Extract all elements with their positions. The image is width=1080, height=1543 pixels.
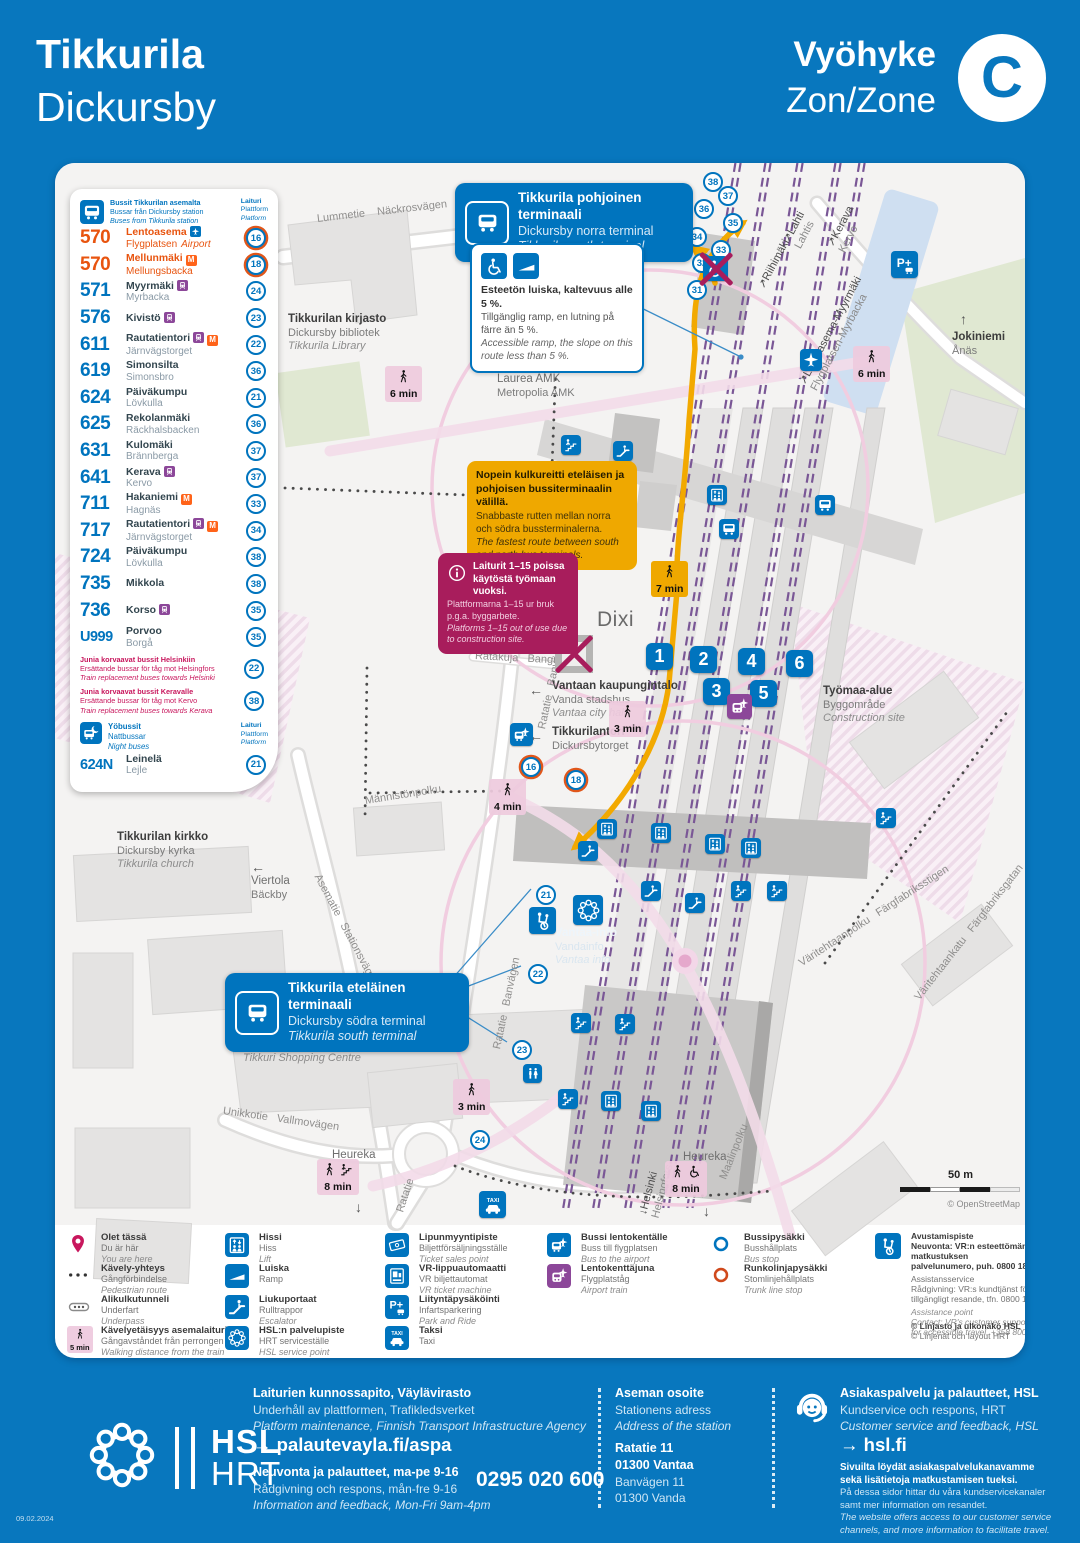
bus-icon: [472, 208, 502, 238]
walker-icon: [670, 1164, 685, 1183]
legend-icon: [385, 1233, 409, 1260]
flower-icon: [225, 1326, 249, 1350]
bus-route-row: 631KulomäkiBrännberga37: [80, 438, 268, 465]
route-number: 624: [80, 387, 126, 409]
airport-icon: [800, 349, 822, 371]
platform-chip-2: 2: [690, 646, 717, 673]
assistance-point-icon: [875, 1233, 901, 1259]
train-icon: [164, 466, 175, 477]
route-destination-fi: Simonsilta: [126, 360, 179, 371]
night-route-row: 624NLeineläLejle21: [80, 752, 268, 779]
bus-route-row: 724PäiväkumpuLövkulla38: [80, 544, 268, 571]
platform-header-en: Platform: [241, 215, 268, 223]
stairs-icon: [571, 1013, 591, 1033]
route-destination-sv: Mellungsbacka: [126, 266, 193, 277]
platform-circle: 38: [246, 574, 266, 594]
bus-route-row: 641KeravaKervo37: [80, 464, 268, 491]
route-destination-sv: Järnvägstorget: [126, 346, 192, 357]
train-replacement-row: Junia korvaavat bussit HelsinkiinErsätta…: [80, 655, 268, 683]
street-label-ratatie-s: Ratatie: [394, 1177, 416, 1214]
platform-circle-36: 36: [694, 199, 714, 219]
lift-icon: [597, 819, 617, 839]
hsl-link[interactable]: → hsl.fi: [840, 1434, 907, 1456]
bus-stop-icon: [815, 495, 835, 515]
vantaa-info-icon: [573, 895, 603, 925]
route-number: 624N: [80, 757, 126, 773]
platform-circle: 22: [244, 659, 264, 679]
route-number: 717: [80, 520, 126, 542]
walk-badge-mannisto: 4 min: [489, 779, 526, 815]
map-label-vantaa-info: Vantaa-infoVandainfoVantaa info: [555, 927, 617, 967]
platform-circle: 37: [246, 468, 266, 488]
street-label-unikkotie: Unikkotie Vallmovägen: [222, 1105, 340, 1133]
route-destination-fi: Mikkola: [126, 578, 164, 589]
route-destination-fi: Kerava: [126, 467, 161, 478]
legend-item: RunkolinjapysäkkiStomlinjehållplatsTrunk…: [744, 1263, 896, 1295]
bus-icon: [465, 201, 509, 245]
route-destination-fi: Korso: [126, 605, 156, 616]
platform-circle-23: 23: [512, 1040, 532, 1060]
escalator-icon: [613, 441, 633, 461]
walk-badge-center: 3 min: [609, 701, 646, 737]
street-label-ratatie-banvagen-s: Ratatie Banvägen: [491, 956, 522, 1050]
platform-circle: 38: [244, 691, 264, 711]
platform-circle: 16: [246, 228, 266, 248]
bus-route-row: 571MyyrmäkiMyrbacka24: [80, 278, 268, 305]
ramp-sv: Tillgänglig ramp, en lutning på färre än…: [481, 311, 633, 337]
panel-title-en: Buses from Tikkurila station: [110, 216, 203, 225]
legend-icon: [225, 1233, 249, 1260]
route-number: 625: [80, 413, 126, 435]
train-icon: [177, 280, 188, 291]
platforms-closed-fi: Laiturit 1–15 poissa käytöstä työmaan vu…: [473, 561, 569, 599]
route-destination-sv: Myrbacka: [126, 292, 169, 303]
route-number: 631: [80, 440, 126, 462]
map-label-church: Tikkurilan kirkkoDickursby kyrkaTikkuril…: [117, 831, 208, 871]
legend-icon: [225, 1264, 249, 1291]
zone-label-fi: Vyöhyke: [786, 32, 936, 78]
route-number: 571: [80, 280, 126, 302]
south-terminal-callout: Tikkurila eteläinen terminaali Dickursby…: [225, 973, 469, 1052]
svg-text:TAXI: TAXI: [391, 1331, 403, 1337]
map-card: Tikkurilan kirjastoDickursby bibliotekTi…: [55, 163, 1025, 1358]
escalator-icon: [685, 893, 705, 913]
stairs-icon: [561, 435, 581, 455]
night-bus-icon: [80, 722, 102, 744]
route-destination-fi: Lentoasema: [126, 227, 187, 238]
train-replacement-row: Junia korvaavat bussit KeravalleErsättan…: [80, 687, 268, 715]
route-number: 619: [80, 360, 126, 382]
platform-circle-21: 21: [536, 885, 556, 905]
route-number: 570: [80, 227, 126, 249]
platform-circle: 33: [246, 494, 266, 514]
stairs-icon: [767, 881, 787, 901]
route-destination-sv: Hagnäs: [126, 505, 160, 516]
walk-badge-heureka-east: 8 min: [665, 1161, 707, 1197]
walker-icon: [864, 349, 879, 368]
bus-route-row: 570LentoasemaFlygplatsenAirport16: [80, 225, 268, 252]
footer-divider: [598, 1388, 601, 1508]
legend-icon: [385, 1264, 409, 1291]
bus-icon: [242, 998, 272, 1028]
walker-icon: [322, 1162, 337, 1181]
panel-title-fi: Bussit Tikkurilan asemalta: [110, 198, 203, 207]
route-number: 611: [80, 334, 126, 356]
walker-icon: [662, 564, 677, 583]
copyright: © Linjasto ja ulkonäkö HSL© Linjenät och…: [911, 1321, 1025, 1341]
route-number: 724: [80, 546, 126, 568]
ticket-icon: [385, 1233, 409, 1257]
customer-service-icon: [790, 1385, 834, 1434]
platform-circle: 37: [246, 441, 266, 461]
airport-train-icon: [727, 694, 752, 719]
street-label-varitehtaanpolku: Väritehtaanpolku Färgfabriksstigen: [797, 863, 951, 969]
platform-chip-5: 5: [750, 680, 777, 707]
route-destination-fi: Hakaniemi: [126, 492, 178, 503]
station-map-poster: Tikkurila Dickursby Vyöhyke Zon/Zone C: [0, 0, 1080, 1543]
busplane-icon: [547, 1233, 571, 1257]
scale-bar: [900, 1187, 1020, 1192]
address-head: Aseman osoite Stationens adress Address …: [615, 1385, 731, 1434]
osm-attribution: © OpenStreetMap: [900, 1199, 1020, 1209]
route-number: U999: [80, 629, 126, 645]
escalator-icon: [641, 881, 661, 901]
platform-chip-4: 4: [738, 648, 765, 675]
night-title-en: Night buses: [108, 742, 149, 752]
accessible-entrance-closed-icon: [703, 256, 728, 281]
lift-icon: [641, 1101, 661, 1121]
legend-icon: [547, 1264, 571, 1291]
scale-label: 50 m: [948, 1169, 973, 1181]
panel-title-sv: Bussar från Dickursby station: [110, 207, 203, 216]
map-label-dixi: Dixi: [597, 607, 634, 632]
hsl-flower-icon: [85, 1418, 159, 1497]
zone-letter-badge: C: [958, 34, 1046, 122]
direction-arrow: ↑: [960, 311, 967, 327]
north-terminal-sv: Dickursby norra terminal: [518, 224, 683, 240]
north-terminal-fi: Tikkurila pohjoinen terminaali: [518, 190, 683, 224]
platform-circle: 18: [246, 255, 266, 275]
legend-icon: [67, 1233, 89, 1260]
route-destination-fi: Päiväkumpu: [126, 387, 187, 398]
service-body: Sivuilta löydät asiakaspalvelukanavamme …: [840, 1462, 1051, 1537]
route-destination-en: Airport: [181, 239, 210, 250]
route-destination-fi: Kulomäki: [126, 440, 173, 451]
platform-chip-3: 3: [703, 678, 730, 705]
ramp-fi: Esteetön luiska, kaltevuus alle 5 %.: [481, 284, 633, 311]
wheelchair-icon: [481, 253, 507, 279]
taxi-icon: TAXI: [385, 1326, 409, 1350]
direction-arrow: ↓: [703, 1203, 710, 1219]
platforms-closed-callout: Laiturit 1–15 poissa käytöstä työmaan vu…: [438, 553, 578, 654]
route-number: 641: [80, 467, 126, 489]
bus-route-row: 717RautatientoriMJärnvägstorget34: [80, 518, 268, 545]
platform-circle: 34: [246, 521, 266, 541]
street-label-lummetie: Lummetie Näckrosvägen: [316, 198, 447, 225]
walk-badge-heureka-west: 8 min: [317, 1159, 359, 1195]
platform-circle: 21: [246, 388, 266, 408]
bus-to-airport-icon: [510, 723, 533, 746]
platform-circle: 23: [246, 308, 266, 328]
legend-icon: [875, 1233, 901, 1262]
trunk-stop-icon: [710, 1273, 732, 1290]
maintenance-block: Laiturien kunnossapito, Väylävirasto Und…: [253, 1385, 586, 1434]
train-icon: [164, 312, 175, 323]
route-destination-sv: Lejle: [126, 765, 246, 776]
map-label-viertola: ViertolaBäckby: [251, 875, 290, 902]
platforms-closed-sv: Plattformarna 1–15 ur bruk p.g.a. byggar…: [447, 599, 569, 622]
parkride-icon: P+: [385, 1295, 409, 1319]
walker-icon: [396, 369, 411, 388]
bus-route-row: 611RautatientoriMJärnvägstorget22: [80, 331, 268, 358]
bus-route-row: 736Korso35: [80, 597, 268, 624]
platform-circle: 36: [246, 414, 266, 434]
night-title-sv: Nattbussar: [108, 732, 149, 742]
platforms-closed-en: Platforms 1–15 out of use due to constru…: [447, 623, 569, 646]
platform-circle-16: 16: [521, 757, 541, 777]
legend-icon: [67, 1295, 91, 1324]
lift-icon: [651, 823, 671, 843]
legend-icon: 5 min: [67, 1326, 93, 1355]
route-destination-sv: Simonsbro: [126, 372, 174, 383]
route-destination-sv: Kervo: [126, 478, 152, 489]
bus-route-row: 624PäiväkumpuLövkulla21: [80, 385, 268, 412]
metro-icon: M: [186, 255, 197, 266]
bus-route-row: 570MellunmäkiMMellungsbacka18: [80, 252, 268, 279]
platform-circle: 22: [246, 335, 266, 355]
map-label-construction-east: Työmaa-alueByggområdeConstruction site: [823, 685, 905, 725]
footer-divider: [772, 1388, 775, 1508]
route-destination-fi: Myyrmäki: [126, 281, 174, 292]
fastest-route-sv: Snabbaste rutten mellan norra och södra …: [476, 510, 628, 536]
stairs-icon: [339, 1162, 354, 1181]
route-destination-sv: Borgå: [126, 638, 153, 649]
legend-icon: [547, 1233, 571, 1260]
legend-icon: [710, 1233, 732, 1260]
route-destination-sv: Lövkulla: [126, 558, 163, 569]
platform-circle: 24: [246, 281, 266, 301]
park-and-ride-icon: P+: [891, 251, 918, 278]
title-fi: Tikkurila: [36, 28, 216, 81]
walk-badge-south: 3 min: [453, 1079, 490, 1115]
street-label-mannistonpolku: Männistönpolku: [364, 783, 442, 807]
route-destination-fi: Päiväkumpu: [126, 546, 187, 557]
escalator-icon: [225, 1295, 249, 1319]
route-number: 736: [80, 600, 126, 622]
bus-icon: [80, 200, 104, 224]
platform-header-sv: Plattform: [241, 206, 268, 214]
service-head: Asiakaspalvelu ja palautteet, HSL Kundse…: [840, 1385, 1039, 1434]
walk-badge-bridge: 7 min: [651, 561, 688, 597]
walk-badge-library: 6 min: [385, 366, 422, 402]
metro-icon: M: [181, 494, 192, 505]
stairs-icon: [615, 1014, 635, 1034]
platform-circle: 35: [246, 601, 266, 621]
legend-icon: [67, 1264, 89, 1291]
legend-icon: [225, 1326, 249, 1353]
metro-icon: M: [207, 521, 218, 532]
bus-departures-panel: Bussit Tikkurilan asemalta Bussar från D…: [70, 189, 278, 792]
escalator-icon: [578, 841, 598, 861]
underpass-icon: [67, 1306, 91, 1323]
route-number: 711: [80, 493, 126, 515]
bus-stop-icon: [710, 1242, 732, 1259]
platform-circle-22: 22: [528, 964, 548, 984]
route-destination-sv: Räckhalsbacken: [126, 425, 199, 436]
stairs-icon: [558, 1089, 578, 1109]
route-destination-fi: Leinelä: [126, 754, 246, 766]
map-label-laurea: Laurea AMKMetropolia AMK: [497, 373, 575, 400]
bus-route-row: U999PorvooBorgå35: [80, 624, 268, 651]
stairs-icon: [731, 881, 751, 901]
you-are-here-pin-icon: [67, 1242, 89, 1259]
svg-text:TAXI: TAXI: [486, 1197, 499, 1203]
direction-arrow: ←: [529, 682, 543, 698]
vr-icon: [385, 1264, 409, 1288]
platform-circle: 38: [246, 547, 266, 567]
route-number: 576: [80, 307, 126, 329]
ramp-icon: [513, 253, 539, 279]
train-icon: [159, 604, 170, 615]
bus-icon: [235, 991, 279, 1035]
train-icon: [193, 518, 204, 529]
platform-circle-18: 18: [566, 770, 586, 790]
phone-number: 0295 020 600: [476, 1468, 604, 1492]
lift-icon: [707, 485, 727, 505]
walker-icon: [464, 1082, 479, 1101]
route-destination-fi: Porvoo: [126, 626, 162, 637]
wc-icon: [523, 1064, 542, 1083]
hsl-logo: HSL HRT: [85, 1418, 281, 1497]
zone-label-sv-en: Zon/Zone: [786, 78, 936, 124]
night-title-fi: Yöbussit: [108, 722, 149, 732]
lift-icon: [225, 1233, 249, 1257]
south-terminal-sv: Dickursby södra terminal: [288, 1014, 459, 1030]
route-destination-fi: Rautatientori: [126, 333, 190, 344]
train-icon: [193, 332, 204, 343]
legend-item: BussipysäkkiBusshållplatsBus stop: [744, 1232, 896, 1264]
feedback-link[interactable]: → palautevayla.fi/aspa: [253, 1434, 451, 1456]
track-label-riihimaki: ↗Riihimäki: [756, 237, 793, 291]
route-destination-fi: Kivistö: [126, 313, 161, 324]
map-label-library: Tikkurilan kirjastoDickursby bibliotekTi…: [288, 313, 386, 353]
route-destination-sv: Lövkulla: [126, 398, 163, 409]
walker-icon: [500, 782, 515, 801]
lift-icon: [705, 834, 725, 854]
platform-circle-35: 35: [723, 213, 743, 233]
south-terminal-fi: Tikkurila eteläinen terminaali: [288, 980, 459, 1014]
feedback-info-block: Neuvonta ja palautteet, ma-pe 9-16 Rådgi…: [253, 1464, 490, 1513]
logo-divider: [175, 1427, 195, 1489]
track-label-kerava: ↗KeravaKervo: [825, 204, 869, 255]
route-destination-fi: Rautatientori: [126, 519, 190, 530]
route-destination-fi: Mellunmäki: [126, 253, 183, 264]
bus-route-row: 625RekolanmäkiRäckhalsbacken36: [80, 411, 268, 438]
bus-route-row: 619SimonsiltaSimonsbro36: [80, 358, 268, 385]
direction-arrow: ↓: [355, 1199, 362, 1215]
platform-chip-6: 6: [786, 650, 813, 677]
title-sv: Dickursby: [36, 81, 216, 134]
bus-stop-icon: [719, 519, 739, 539]
platform-circle: 36: [246, 361, 266, 381]
pedestrian-route-icon: [67, 1273, 89, 1290]
legend-item: TaksiTaxi: [419, 1325, 571, 1347]
trainplane-icon: [547, 1264, 571, 1288]
platform-circle: 21: [246, 755, 266, 775]
route-destination-sv: Brännberga: [126, 451, 178, 462]
airport-icon: [190, 226, 201, 237]
route-destination-sv: Flygplatsen: [126, 239, 177, 250]
route-destination-fi: Rekolanmäki: [126, 413, 190, 424]
legend-icon: TAXI: [385, 1326, 409, 1353]
platform-circle: 35: [246, 627, 266, 647]
platform-circle-38: 38: [703, 172, 723, 192]
lift-icon: [601, 1091, 621, 1111]
accessible-ramp-callout: Esteetön luiska, kaltevuus alle 5 %. Til…: [470, 243, 644, 373]
bus-icon: [80, 198, 104, 225]
wheelchair-icon: [687, 1164, 702, 1183]
direction-arrow: ←: [251, 859, 265, 875]
zone-block: Vyöhyke Zon/Zone C: [786, 32, 1046, 123]
address-lines: Ratatie 11 01300 Vantaa Banvägen 11 0130…: [615, 1440, 694, 1506]
assistance-point-icon: [529, 907, 556, 934]
platform-circle-31: 31: [687, 280, 707, 300]
page-title: Tikkurila Dickursby: [36, 28, 216, 135]
walk-badge-northeast: 6 min: [853, 346, 890, 382]
legend-item: LiityntäpysäköintiInfartsparkeringPark a…: [419, 1294, 571, 1326]
legend-icon: [225, 1295, 249, 1322]
ramp-en: Accessible ramp, the slope on this route…: [481, 337, 633, 363]
svg-text:P+: P+: [896, 255, 911, 269]
lift-icon: [741, 838, 761, 858]
map-label-jokiniemi: JokiniemiÅnäs: [952, 331, 1005, 358]
route-number: 570: [80, 254, 126, 276]
bus-route-row: 711HakaniemiMHagnäs33: [80, 491, 268, 518]
bus-route-row: 576Kivistö23: [80, 305, 268, 332]
bus-route-row: 735Mikkola38: [80, 571, 268, 598]
legend-icon: P+: [385, 1295, 409, 1322]
stairs-icon: [876, 808, 896, 828]
route-destination-sv: Järnvägstorget: [126, 532, 192, 543]
metro-icon: M: [207, 335, 218, 346]
platform-circle-24: 24: [470, 1130, 490, 1150]
version-date: 09.02.2024: [16, 1514, 54, 1523]
info-icon: [447, 563, 467, 590]
platform-chip-1: 1: [646, 643, 673, 670]
walker-icon: [620, 704, 635, 723]
walking-distance-badge: 5 min: [67, 1326, 93, 1353]
taxi-icon: TAXI: [479, 1191, 506, 1218]
fastest-route-fi: Nopein kulkureitti eteläisen ja pohjoise…: [476, 469, 628, 510]
street-label-asematie: Asematie Stationsvägen: [312, 872, 381, 988]
night-bus-icon: [80, 722, 102, 744]
route-number: 735: [80, 573, 126, 595]
ramp-icon: [225, 1264, 249, 1288]
south-terminal-en: Tikkurila south terminal: [288, 1029, 459, 1045]
platform-circle-37: 37: [718, 186, 738, 206]
legend-icon: [710, 1264, 732, 1291]
platform-header-fi: Laituri: [241, 198, 268, 206]
